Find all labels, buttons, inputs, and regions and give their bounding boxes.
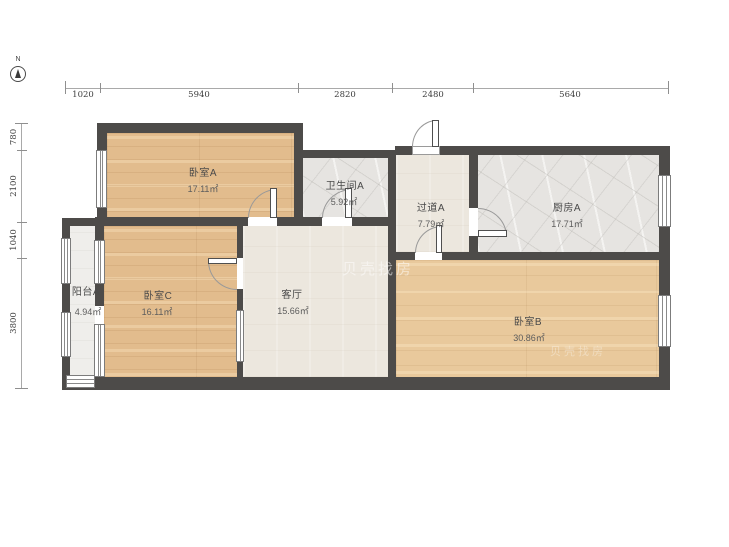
dim-tick [473,83,474,93]
room-label-hallway-a: 过道A [417,199,445,214]
wall [469,236,478,260]
watermark: 贝壳找房 [342,258,414,279]
wall [469,155,478,208]
dim-tick [392,83,393,93]
dim-line-left [21,123,22,388]
room-label-bedroom-c: 卧室C [144,287,173,302]
wall [95,226,104,240]
wall [95,217,248,226]
dim-tick [17,222,27,223]
room-balcony-a-floor [70,226,95,377]
room-area-living: 15.66㎡ [277,304,309,317]
wall [303,150,395,158]
room-label-bedroom-b: 卧室B [514,313,542,328]
window-balcony-partition-upper [94,240,105,284]
dim-tick [298,83,299,93]
dim-left-1: 780 [9,129,19,145]
dim-top-1: 1020 [72,90,94,100]
door-opening-bedroom-c [237,258,243,289]
room-label-balcony-a: 阳台A [72,283,100,298]
door-opening-bedroom-a [248,217,277,226]
room-area-hallway-a: 7.79㎡ [418,217,445,230]
door-leaf-bedroom-c [208,258,237,264]
dim-top-5: 5640 [559,90,581,100]
door-opening-kitchen-a [469,208,478,236]
wall [237,289,243,310]
window-balcony-bottom [66,375,95,388]
door-opening-bathroom-a [322,217,352,226]
door-leaf-bedroom-a [270,188,277,218]
window-balcony-upper [61,238,71,284]
dim-left-2: 2100 [9,175,19,197]
dim-tick [100,83,101,93]
dim-tick [17,258,27,259]
room-area-bedroom-b: 30.86㎡ [513,331,545,344]
dim-left-3: 1040 [9,229,19,251]
room-area-balcony-a: 4.94㎡ [75,305,102,318]
window-bedroom-c-partition [236,310,244,362]
compass-n-label: N [15,56,20,63]
room-area-bedroom-a: 17.11㎡ [188,182,219,195]
room-label-kitchen-a: 厨房A [553,199,581,214]
room-area-bathroom-a: 5.92㎡ [331,195,358,208]
room-living-floor [243,226,388,377]
dim-tick [668,81,669,94]
wall [62,377,670,390]
dim-tick [17,150,27,151]
door-leaf-entrance [432,120,439,147]
wall [395,146,412,155]
dim-line-top [65,88,668,89]
dim-tick [65,81,66,94]
wall [97,123,303,133]
compass-needle-icon [15,69,21,78]
wall [62,218,95,226]
window-balcony-lower [61,312,71,357]
dim-tick [15,388,28,389]
wall [294,133,303,226]
wall [237,362,243,377]
door-opening-bedroom-b [415,252,442,260]
window-bedroom-a [96,150,107,208]
dim-top-2: 5940 [188,90,210,100]
wall [237,226,243,258]
dim-tick [15,123,28,124]
door-leaf-kitchen-a [478,230,507,237]
dim-top-3: 2820 [334,90,356,100]
watermark: 贝壳找房 [550,343,606,359]
room-label-bathroom-a: 卫生间A [326,177,365,192]
entrance-threshold [412,146,440,155]
room-area-bedroom-c: 16.11㎡ [142,305,173,318]
room-area-kitchen-a: 17.71㎡ [551,217,583,230]
window-balcony-partition-lower [94,324,105,377]
dim-top-4: 2480 [422,90,444,100]
compass-north-icon: N [8,56,28,96]
window-bedroom-b [658,295,671,347]
room-label-living: 客厅 [282,286,303,301]
window-kitchen [658,175,671,227]
wall [277,217,322,226]
floor-plan: N 1020 5940 2820 2480 5640 780 2100 1040… [0,0,729,547]
room-label-bedroom-a: 卧室A [189,164,217,179]
dim-left-4: 3800 [9,312,19,334]
wall [440,146,670,155]
